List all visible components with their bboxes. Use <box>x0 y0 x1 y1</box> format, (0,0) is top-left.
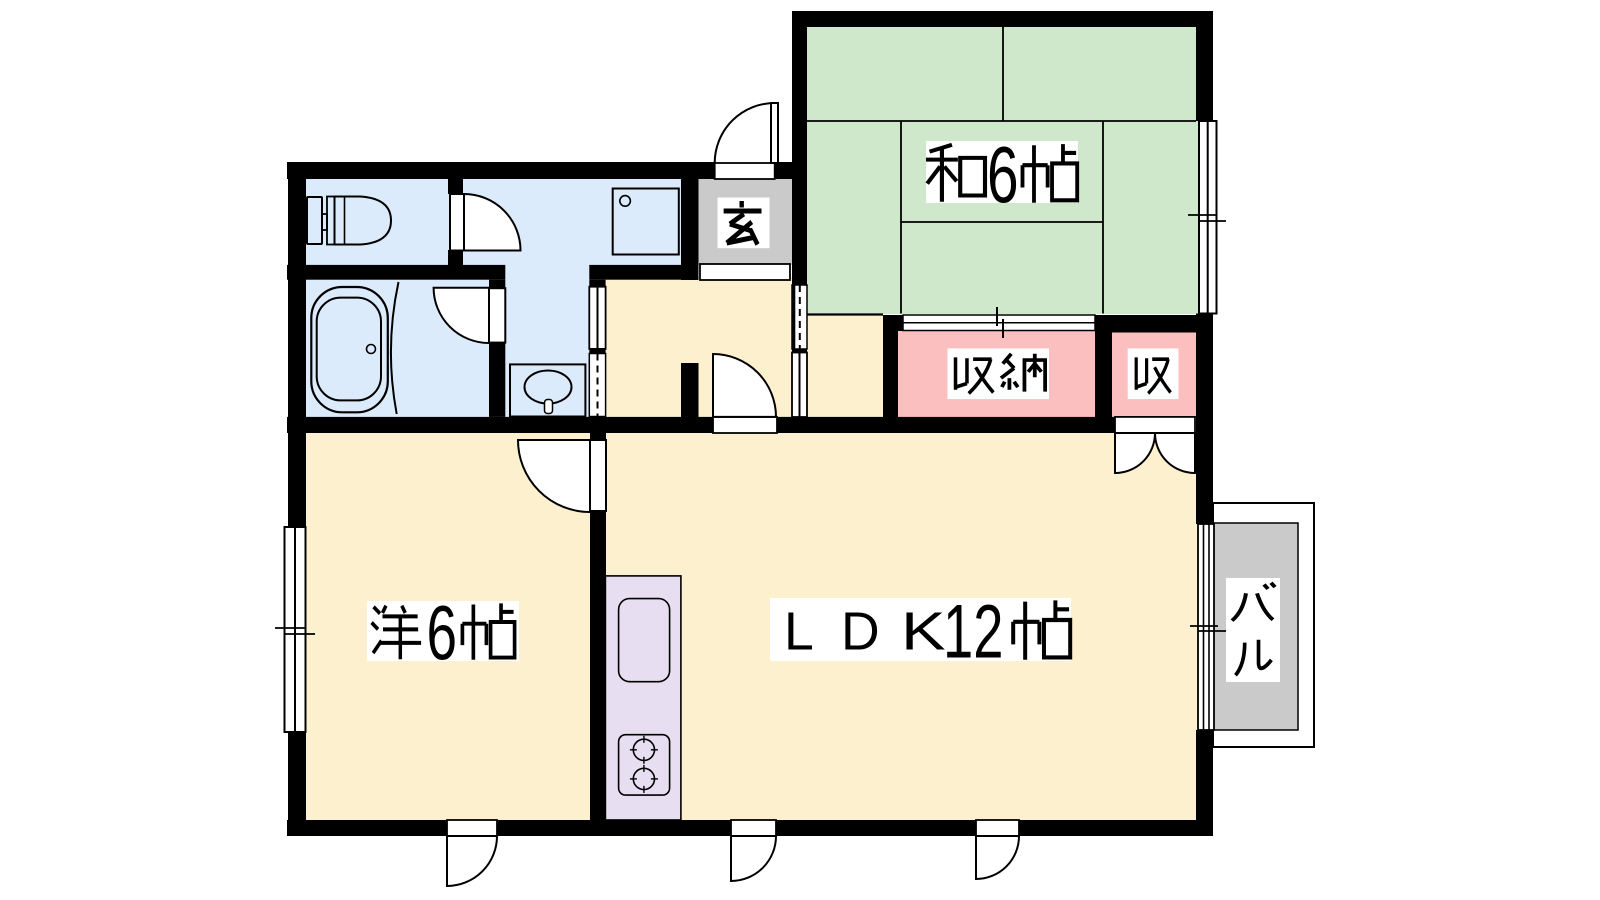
svg-text:12: 12 <box>943 589 1003 674</box>
svg-text:K: K <box>901 601 946 661</box>
svg-text:6: 6 <box>987 129 1019 219</box>
svg-text:6: 6 <box>427 590 458 676</box>
svg-text:D: D <box>841 603 880 662</box>
svg-text:L: L <box>784 603 814 662</box>
